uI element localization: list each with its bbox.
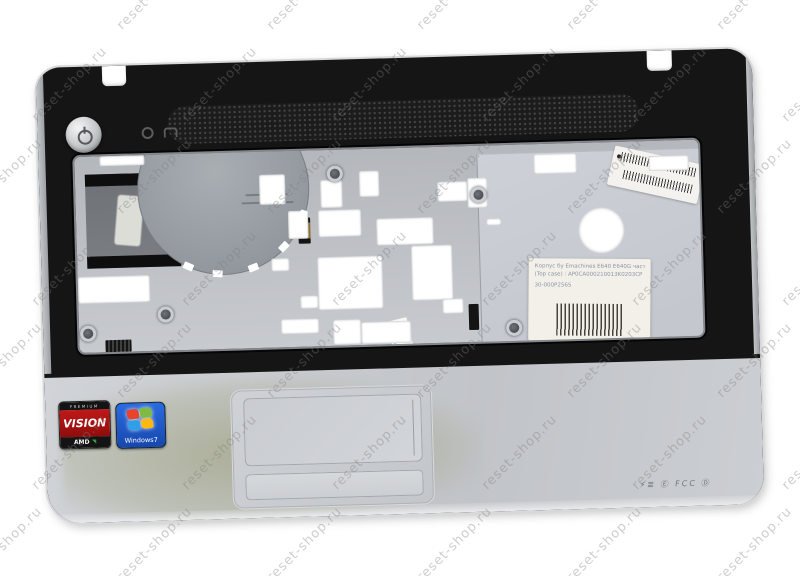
heatsink-bar	[87, 254, 181, 269]
chassis-cutout	[411, 245, 454, 301]
amd-arrow-icon	[91, 439, 96, 444]
chassis-cutout	[320, 180, 343, 209]
flag-pane-green	[139, 407, 152, 418]
hinge-notch-right	[647, 50, 673, 71]
watermark-text: reset-shop.ru	[564, 504, 645, 576]
hinge-notch-left	[102, 66, 127, 87]
watermark-text: reset-shop.ru	[779, 228, 800, 309]
watermark-text: reset-shop.ru	[114, 0, 195, 33]
chassis-cutout	[259, 174, 286, 205]
board-connector	[469, 304, 480, 330]
chassis-cutout	[271, 258, 289, 271]
watermark-text: reset-shop.ru	[414, 504, 495, 576]
watermark-text: reset-shop.ru	[264, 0, 345, 33]
chassis-cutout	[648, 155, 688, 171]
flag-pane-yellow	[141, 418, 154, 429]
watermark-text: reset-shop.ru	[714, 0, 795, 33]
chassis-cutout	[300, 295, 318, 308]
touchpad-button-bar	[245, 469, 424, 500]
watermark-text: reset-shop.ru	[414, 0, 495, 33]
fan-notch	[212, 270, 222, 278]
windows7-sticker: Windows7	[115, 402, 166, 449]
touchpad-surface	[243, 393, 423, 466]
chassis-cutout	[376, 217, 434, 246]
touchpad	[231, 385, 434, 509]
watermark-text: reset-shop.ru	[0, 504, 45, 576]
shop-label-line2: (Top case) : AP0CA000210013K0203CP	[535, 271, 645, 280]
chassis-cutout	[486, 218, 501, 225]
chassis-cutout	[442, 298, 463, 314]
right-edge-rim	[746, 54, 760, 354]
screw-hole	[83, 329, 93, 339]
watermark-text: reset-shop.ru	[714, 504, 795, 576]
chassis-cutout	[318, 209, 362, 237]
watermark-text: reset-shop.ru	[779, 44, 800, 125]
certification-marks: ⚡≣ Ⓔ FCC Ⓓ	[639, 476, 760, 490]
chassis-cutout	[361, 321, 412, 344]
board-connector	[105, 340, 131, 353]
vision-logo-text: VISION	[59, 409, 110, 437]
watermark-text: reset-shop.ru	[564, 0, 645, 33]
watermark-text: reset-shop.ru	[0, 320, 45, 401]
left-edge-rim	[36, 74, 51, 374]
screw-hole	[330, 169, 340, 179]
flag-pane-red	[126, 409, 139, 420]
power-button	[65, 116, 102, 153]
shop-label: Корпус бу Emachines E640 E640G часть C (…	[528, 258, 651, 341]
keyboard-tray: Корпус бу Emachines E640 E640G часть C (…	[74, 140, 703, 353]
disc-indicator-icon	[141, 127, 153, 139]
chassis-cutout	[317, 255, 383, 310]
product-photo: Корпус бу Emachines E640 E640G часть C (…	[0, 0, 800, 576]
windows-sticker-text: Windows7	[117, 436, 165, 445]
power-icon	[78, 130, 93, 145]
amd-vision-sticker: PREMIUM VISION AMD	[58, 400, 111, 449]
speaker-grille	[167, 93, 640, 144]
watermark-text: reset-shop.ru	[779, 412, 800, 493]
screw-hole	[161, 309, 171, 319]
chassis-cutout	[281, 318, 319, 334]
windows-flag-icon	[126, 407, 155, 432]
palmrest: PREMIUM VISION AMD Windows7 ⚡≣ Ⓔ	[44, 358, 764, 524]
chassis-cutout	[533, 153, 577, 174]
laptop-top-case: Корпус бу Emachines E640 E640G часть C (…	[36, 48, 764, 524]
chassis-cutout	[359, 171, 380, 198]
flag-pane-blue	[128, 419, 141, 430]
shop-label-code: 30-000Р2565	[535, 282, 645, 291]
barcode	[556, 303, 622, 335]
chassis-cutout	[333, 319, 362, 345]
chassis-cutout	[78, 275, 151, 304]
amd-logo: AMD	[60, 436, 110, 449]
touchpad-scroll-line	[412, 400, 415, 456]
amd-text: AMD	[74, 438, 90, 445]
wireless-indicator-icon	[163, 127, 177, 137]
watermark-text: reset-shop.ru	[0, 0, 45, 33]
chassis-cutout	[437, 181, 468, 202]
chassis-cutout	[99, 155, 144, 166]
